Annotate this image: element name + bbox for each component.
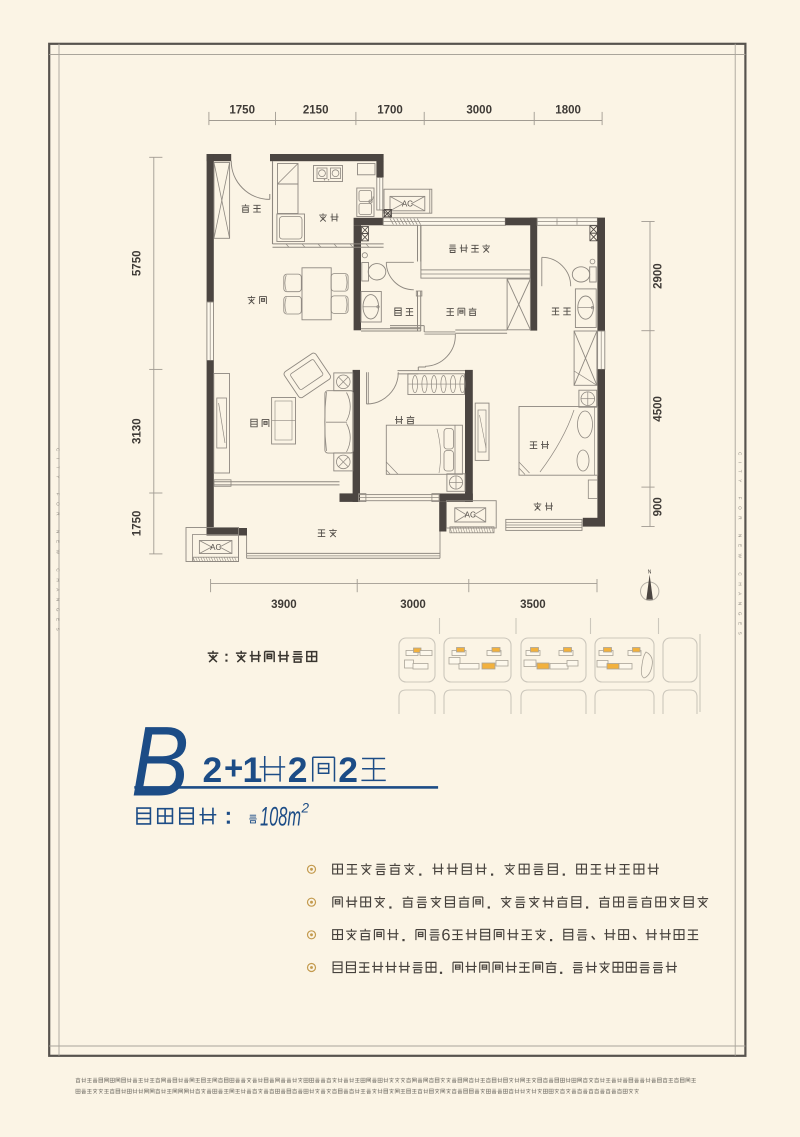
svg-text:AC: AC <box>210 543 221 552</box>
svg-text:2: 2 <box>301 801 310 816</box>
svg-text:3000: 3000 <box>466 105 492 117</box>
svg-text:CITY FOR NEW CHANGES: CITY FOR NEW CHANGES <box>55 448 60 637</box>
svg-text:3900: 3900 <box>271 599 297 611</box>
svg-text:4500: 4500 <box>653 396 665 422</box>
svg-text:108m: 108m <box>260 802 301 832</box>
svg-text:2: 2 <box>338 750 358 790</box>
svg-text:1750: 1750 <box>229 105 255 117</box>
svg-text:3000: 3000 <box>400 599 426 611</box>
svg-text:1750: 1750 <box>132 511 144 537</box>
svg-text:AC: AC <box>402 199 413 208</box>
svg-text:1: 1 <box>243 750 263 790</box>
svg-text:CITY FOR NEW CHANGES: CITY FOR NEW CHANGES <box>737 452 742 641</box>
svg-text:1700: 1700 <box>377 105 403 117</box>
svg-text:2: 2 <box>203 750 223 790</box>
svg-text:2: 2 <box>288 750 308 790</box>
svg-text:6: 6 <box>441 927 450 945</box>
svg-text:AC: AC <box>465 511 476 520</box>
svg-text:2900: 2900 <box>653 263 665 289</box>
svg-text:1800: 1800 <box>555 105 581 117</box>
svg-text:N: N <box>648 570 652 576</box>
svg-text:3500: 3500 <box>520 599 546 611</box>
svg-text:900: 900 <box>653 497 665 516</box>
svg-text:2150: 2150 <box>303 105 329 117</box>
svg-text:B: B <box>131 706 189 816</box>
svg-text:5750: 5750 <box>132 251 144 277</box>
svg-text:3130: 3130 <box>132 418 144 444</box>
svg-text:+: + <box>224 749 243 786</box>
